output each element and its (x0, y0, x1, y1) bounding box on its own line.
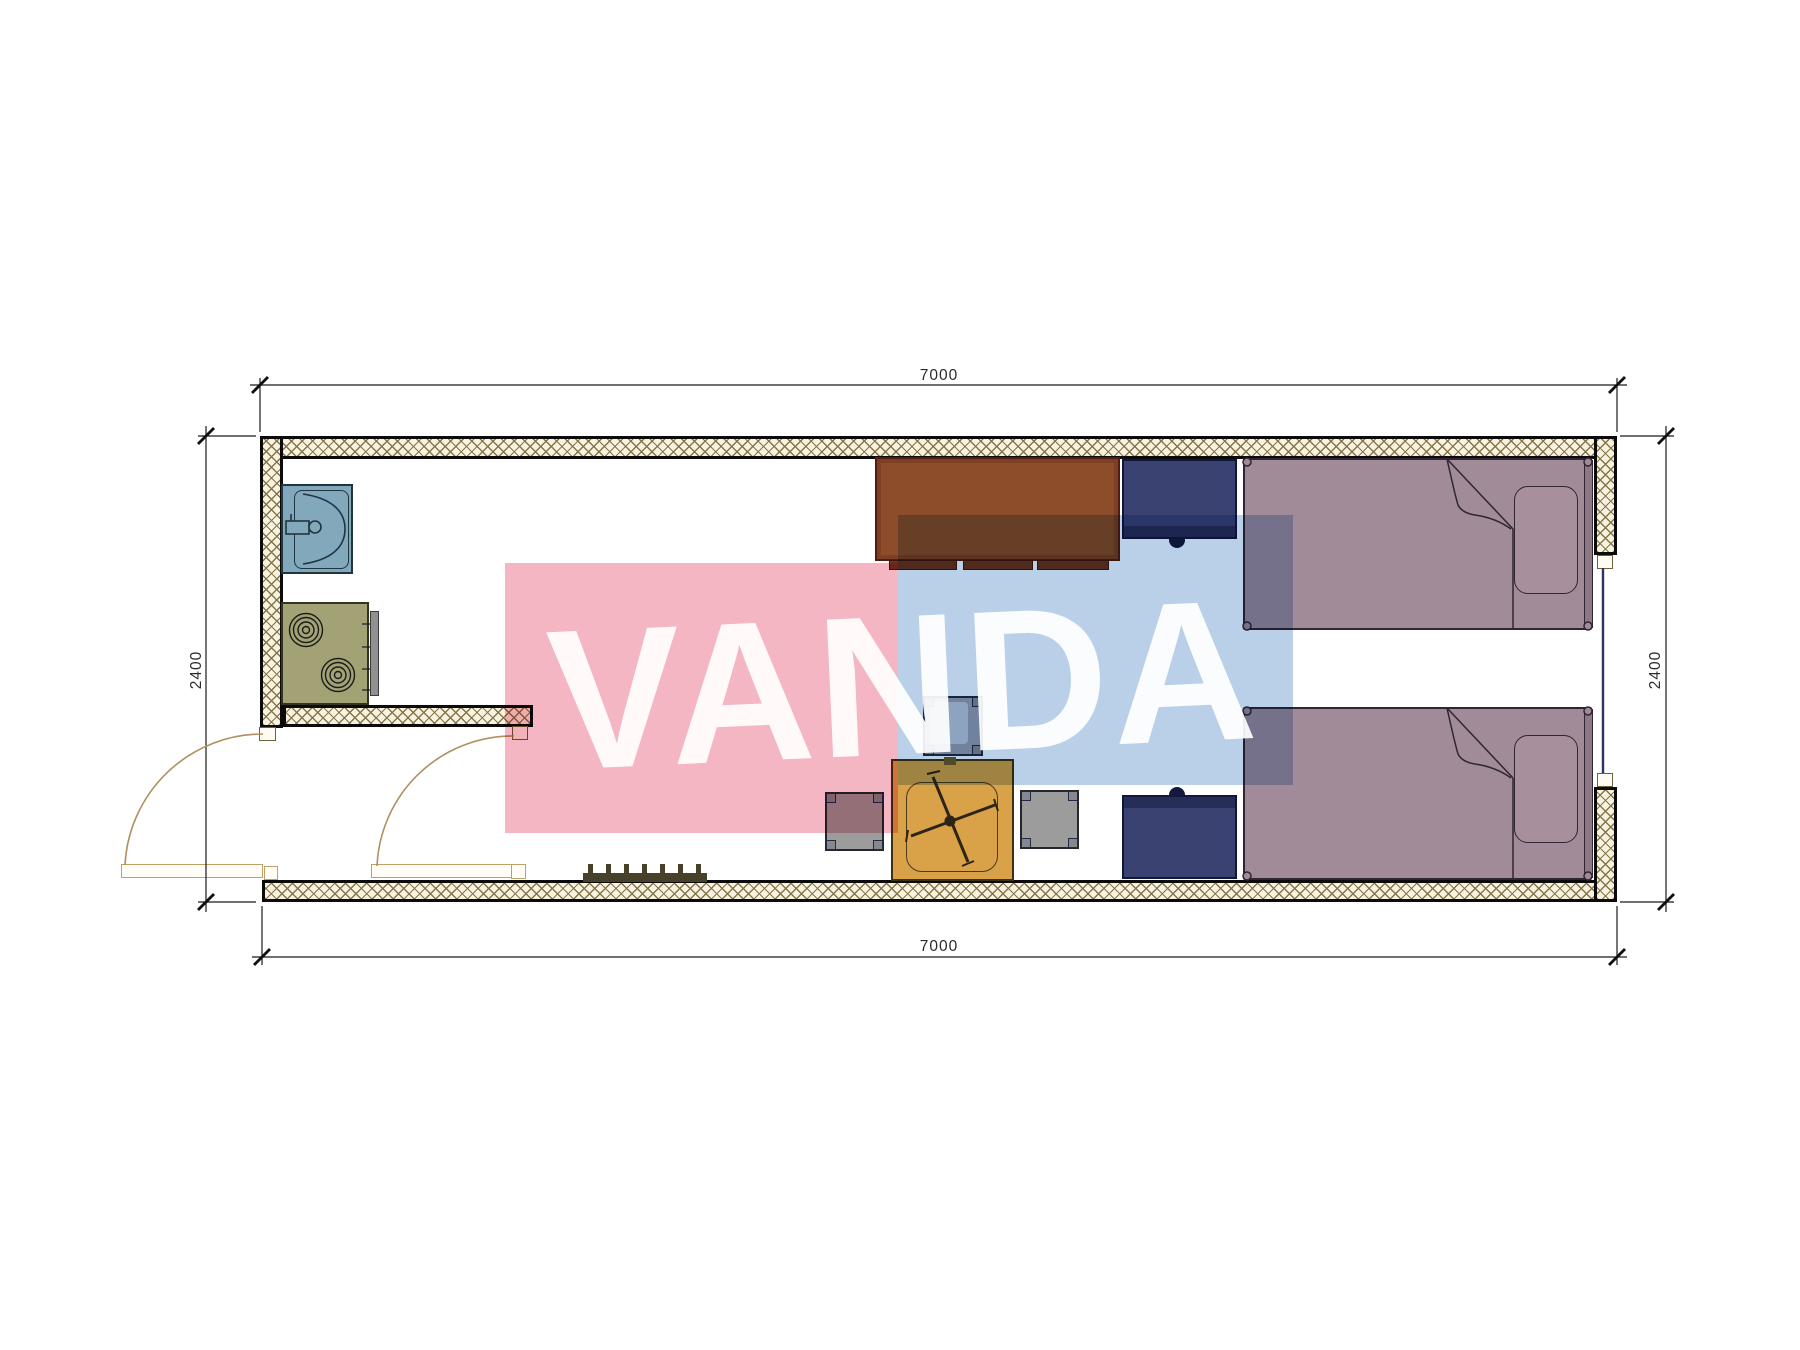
stove-burners (290, 614, 371, 692)
dim-label-bottom: 7000 (908, 938, 970, 956)
dim-label-top: 7000 (908, 367, 970, 385)
door-left-arc (125, 734, 263, 865)
bed-bottom-fold (1447, 708, 1513, 878)
bed-top-fold (1447, 459, 1513, 628)
door-bottom-arc (377, 736, 514, 866)
dim-label-right: 2400 (1647, 639, 1665, 701)
door-swing-arcs (125, 734, 514, 866)
dim-label-left: 2400 (188, 639, 206, 701)
watermark-text: VANDA (543, 570, 1263, 802)
faucet-knob (309, 521, 321, 533)
bed-posts (1243, 458, 1592, 880)
floor-plan-canvas: 7000 7000 2400 2400 VANDA (0, 0, 1800, 1350)
faucet-icon (286, 521, 309, 534)
